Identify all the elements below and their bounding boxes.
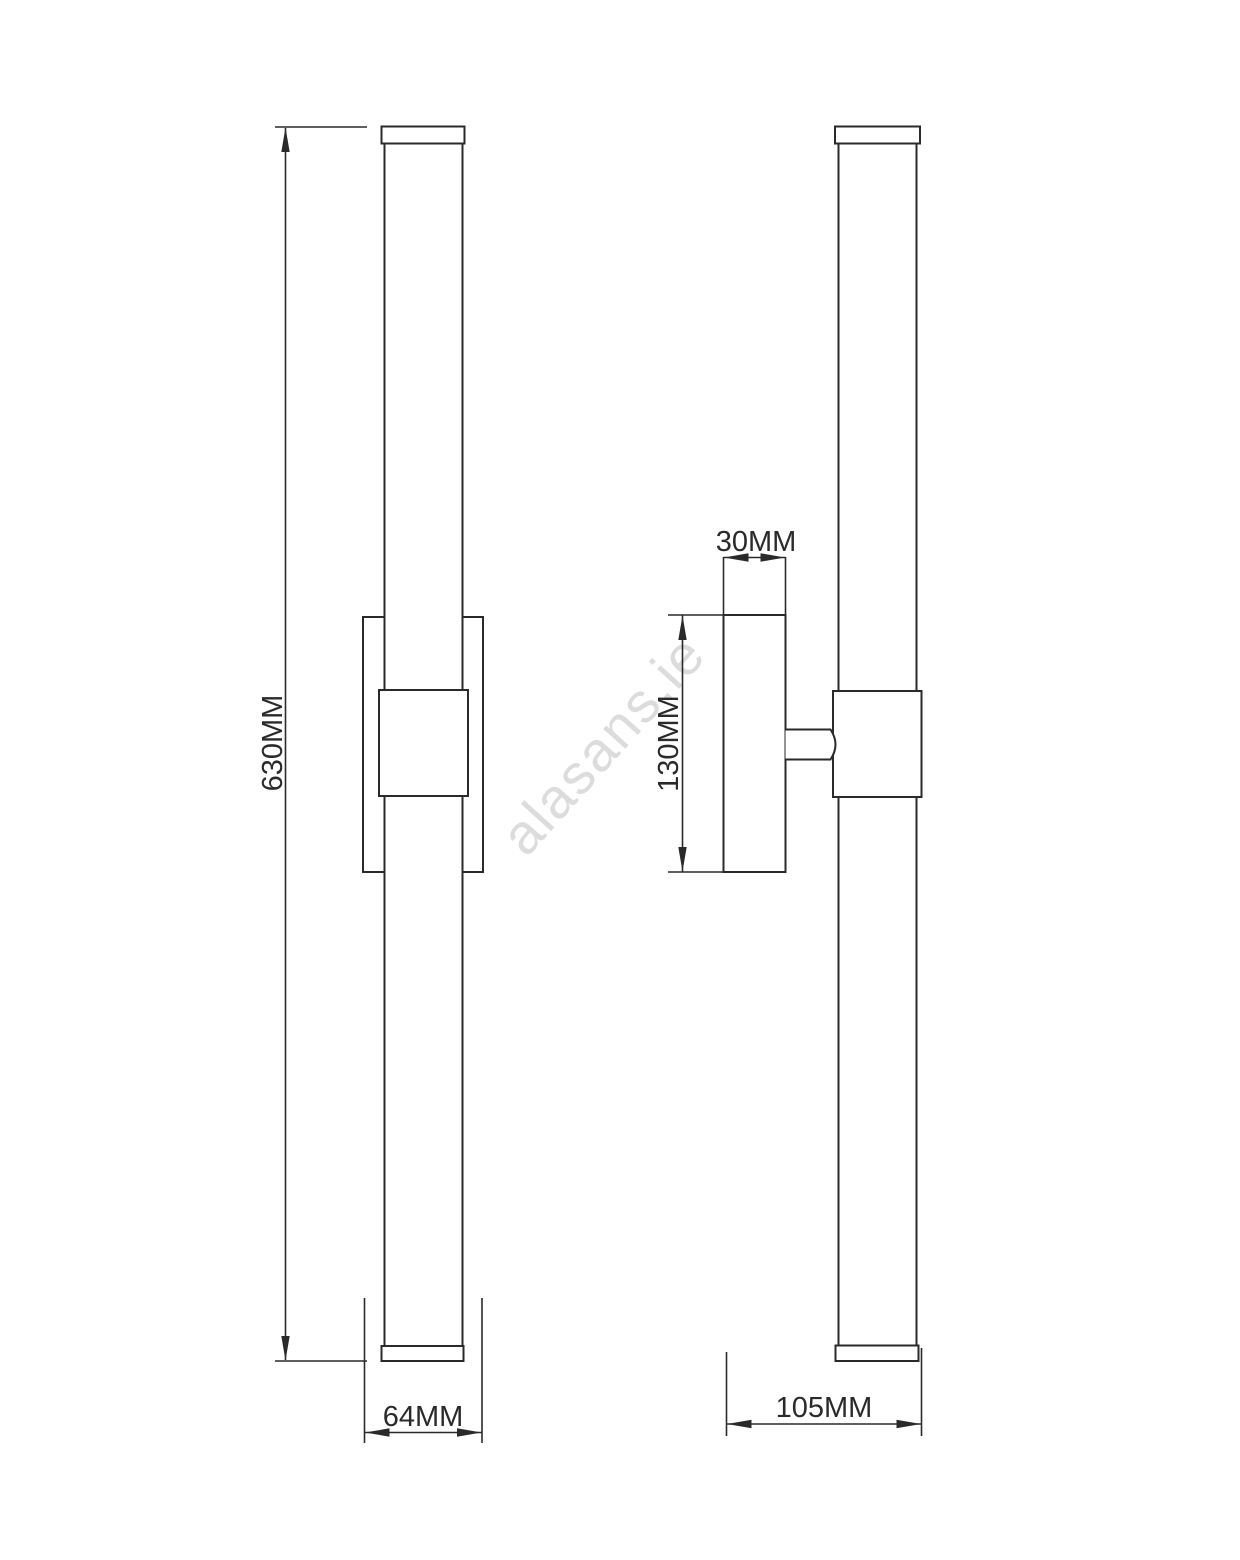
arrowhead-down-icon — [678, 847, 686, 872]
dimension-label-plate-depth: 30MM — [716, 526, 797, 558]
technical-drawing: alasans.ie 630MM 64MM — [0, 0, 1240, 1555]
side-bottom-cap — [836, 1346, 919, 1362]
side-mounting-arm — [786, 730, 836, 760]
dimension-plate-depth: 30MM — [716, 526, 797, 614]
side-view — [724, 127, 922, 1362]
drawing-canvas: alasans.ie 630MM 64MM — [0, 0, 1240, 1555]
front-bottom-cap — [382, 1346, 464, 1361]
arrowhead-up-icon — [281, 128, 289, 153]
arrowhead-down-icon — [281, 1336, 289, 1361]
dimension-height: 630MM — [257, 127, 367, 1361]
dimension-label-height: 630MM — [257, 695, 289, 792]
front-view — [363, 127, 483, 1362]
dimension-label-total-depth: 105MM — [776, 1392, 873, 1424]
arrowhead-right-icon — [897, 1420, 922, 1428]
side-mounting-block — [833, 691, 922, 797]
front-top-cap — [382, 127, 465, 144]
side-top-cap — [835, 127, 920, 144]
dimension-label-plate-height: 130MM — [653, 695, 685, 792]
arrowhead-up-icon — [678, 616, 686, 641]
side-wall-plate — [724, 615, 786, 872]
arrowhead-left-icon — [727, 1420, 752, 1428]
front-mounting-box — [379, 690, 468, 796]
dimension-label-width: 64MM — [383, 1401, 464, 1433]
